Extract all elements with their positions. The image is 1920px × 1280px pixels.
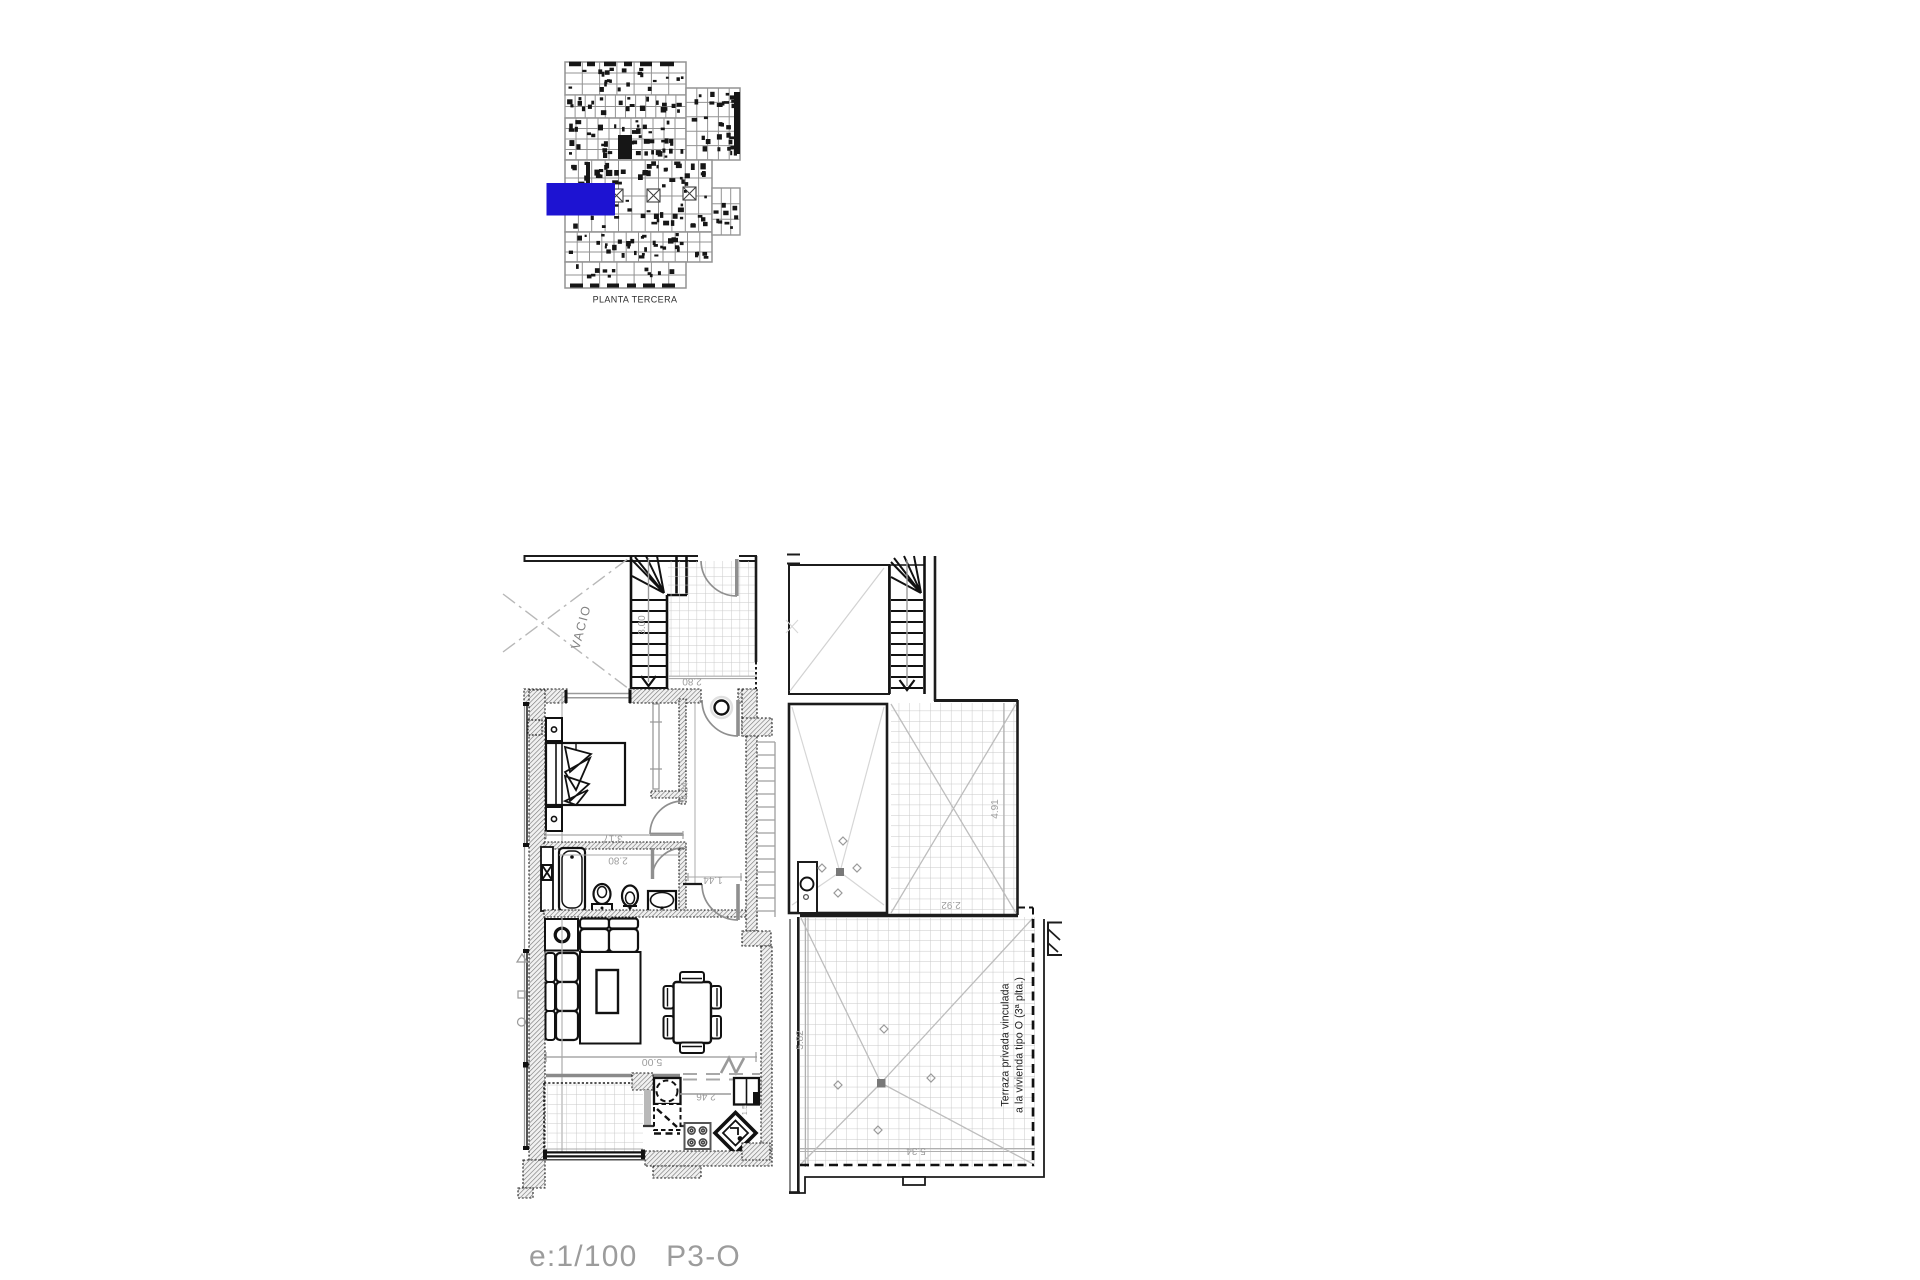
svg-text:e:1/100 P3-O: e:1/100 P3-O (529, 1240, 741, 1273)
svg-text:3.00: 3.00 (637, 615, 648, 635)
svg-text:2.92: 2.92 (941, 899, 961, 910)
svg-text:1.5: 1.5 (740, 1105, 749, 1115)
svg-text:5.00: 5.00 (642, 1056, 663, 1068)
svg-text:4.91: 4.91 (990, 799, 1001, 819)
svg-text:2.80: 2.80 (608, 855, 628, 866)
svg-text:4.24: 4.24 (680, 782, 690, 800)
svg-text:5.82: 5.82 (795, 1030, 806, 1050)
svg-text:1.44: 1.44 (703, 874, 723, 885)
svg-text:PLANTA TERCERA: PLANTA TERCERA (593, 295, 678, 305)
svg-text:a la vivienda tipo O (3ª plta.: a la vivienda tipo O (3ª plta.) (1014, 977, 1026, 1113)
svg-text:2.46: 2.46 (696, 1091, 716, 1102)
svg-text:5.34: 5.34 (906, 1145, 926, 1156)
svg-text:Terraza privada vinculada: Terraza privada vinculada (1000, 983, 1012, 1106)
svg-text:2.80: 2.80 (682, 676, 702, 687)
